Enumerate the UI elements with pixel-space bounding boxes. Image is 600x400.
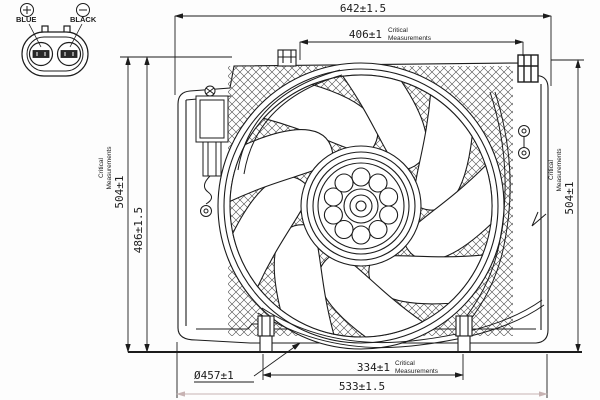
dim-overall-width: 642±1.5 (340, 2, 386, 15)
dim-feet-spacing: 334±1 (357, 361, 390, 374)
top-tab-left (278, 50, 296, 66)
drawing-canvas: BLUE BLACK 642±1.5 406±1 Critical Measur… (0, 0, 600, 400)
fan-hub (301, 146, 421, 266)
critical-note-334-l2: Measurements (395, 368, 439, 375)
positive-terminal-label: BLUE (16, 15, 36, 24)
bottom-foot-left (258, 316, 274, 336)
dim-height-left: 504±1 (113, 175, 126, 208)
critical-note-406-l2: Measurements (388, 35, 432, 42)
hub-center-boss (344, 189, 378, 223)
dim-shroud-height: 486±1.5 (132, 207, 145, 253)
negative-terminal-label: BLACK (70, 15, 97, 24)
critical-note-406-l1: Critical (388, 27, 408, 34)
top-tab-right (518, 55, 538, 82)
critical-note-right-l1: Critical (548, 160, 555, 180)
bottom-peg-right (458, 336, 470, 352)
bottom-foot-right (456, 316, 472, 336)
bottom-peg-left (260, 336, 272, 352)
dim-height-right: 504±1 (563, 181, 576, 214)
dim-mounting-width: 406±1 (349, 28, 382, 41)
critical-note-right-l2: Measurements (556, 148, 563, 192)
fan-technical-drawing: BLUE BLACK 642±1.5 406±1 Critical Measur… (0, 0, 600, 400)
critical-note-left-l1: Critical (98, 158, 105, 178)
critical-note-left-l2: Measurements (106, 146, 113, 190)
critical-note-334-l1: Critical (395, 360, 415, 367)
dim-fan-diameter: Ø457±1 (194, 369, 234, 382)
dim-bottom-width: 533±1.5 (339, 380, 385, 393)
